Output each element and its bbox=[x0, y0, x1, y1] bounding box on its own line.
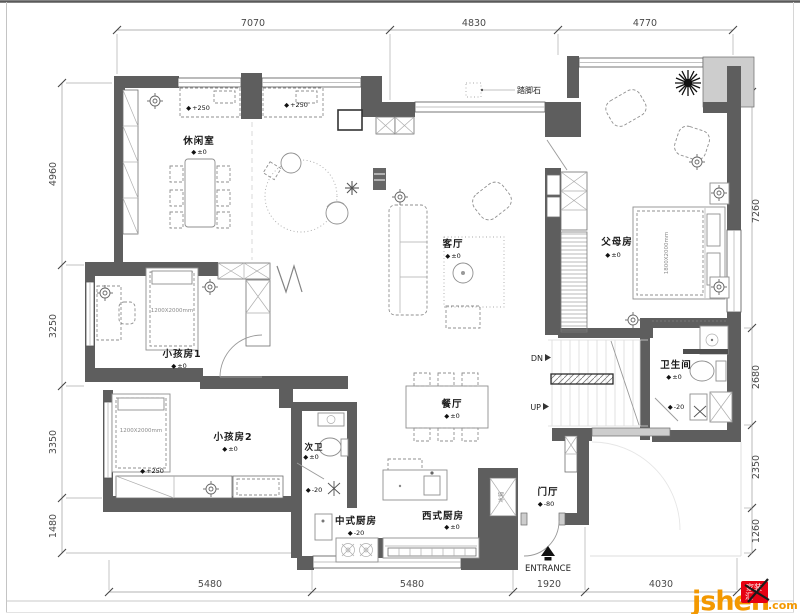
stepping-stone-label: 踏脚石 bbox=[517, 85, 541, 95]
room-label-parents: 父母房 bbox=[600, 236, 633, 248]
svg-text:◆-20: ◆-20 bbox=[348, 529, 365, 537]
bath-toilet bbox=[690, 361, 714, 381]
room-label-dining: 餐厅 bbox=[440, 398, 462, 410]
floor-plan-svg: 7070 4830 4770 4960 3250 3350 1480 7260 … bbox=[0, 0, 800, 614]
room-label-leisure: 休闲室 bbox=[182, 135, 215, 147]
pedestal bbox=[373, 168, 386, 190]
room-label-bath-main: 卫生间 bbox=[660, 359, 692, 371]
island-sink bbox=[424, 476, 440, 495]
shaft-box bbox=[338, 110, 362, 130]
svg-text:◆±0: ◆±0 bbox=[444, 412, 460, 420]
level-plus250-2: ◆+250 bbox=[284, 101, 308, 109]
floor-plan-sheet: 7070 4830 4770 4960 3250 3350 1480 7260 … bbox=[0, 0, 800, 614]
stairs-down-label: DN bbox=[531, 354, 543, 363]
wardrobe-strip bbox=[123, 90, 138, 234]
bath2-basin bbox=[318, 413, 344, 426]
dim-right-2: 2680 bbox=[751, 365, 762, 389]
kid2-bed-size: 1200X2000mm bbox=[120, 428, 162, 434]
svg-text:◆±0: ◆±0 bbox=[171, 362, 187, 370]
parents-closet bbox=[561, 172, 587, 332]
floor-lamp-icon bbox=[345, 181, 359, 195]
stair-handrail bbox=[551, 374, 613, 384]
svg-text:◆±0: ◆±0 bbox=[445, 252, 461, 260]
kitchen-counter bbox=[383, 538, 479, 558]
room-label-foyer: 门厅 bbox=[537, 486, 558, 498]
dim-right-3: 2350 bbox=[751, 455, 762, 479]
dim-top-2: 4830 bbox=[462, 18, 486, 29]
bath-shelf bbox=[683, 349, 728, 354]
stairs-up-label: UP bbox=[530, 403, 541, 412]
svg-text:◆±0: ◆±0 bbox=[222, 445, 238, 453]
room-label-living: 客厅 bbox=[441, 238, 463, 250]
dim-right-4: 1260 bbox=[751, 519, 762, 543]
dim-top-3: 4770 bbox=[633, 18, 657, 29]
svg-text:◆±0: ◆±0 bbox=[191, 148, 207, 156]
dim-left-2: 3250 bbox=[48, 314, 59, 338]
dim-top-1: 7070 bbox=[241, 18, 265, 29]
fridge-label: 冰箱 bbox=[497, 491, 505, 503]
room-label-kid2: 小孩房2 bbox=[212, 431, 252, 443]
parents-bed-size: 1800X2000mm bbox=[664, 232, 670, 274]
dim-left-3: 3350 bbox=[48, 430, 59, 454]
dim-left-4: 1480 bbox=[48, 514, 59, 538]
svg-text:◆±0: ◆±0 bbox=[666, 373, 682, 381]
svg-text:◆±0: ◆±0 bbox=[605, 251, 621, 259]
svg-text:◆-80: ◆-80 bbox=[538, 500, 555, 508]
kid2-closet bbox=[116, 476, 283, 498]
dim-right-1: 7260 bbox=[751, 199, 762, 223]
level-minus20-bath2: ◆-20 bbox=[306, 486, 323, 494]
entrance-label: ENTRANCE bbox=[525, 564, 571, 574]
level-plus250-1: ◆+250 bbox=[186, 104, 210, 112]
room-label-kitchen-cn: 中式厨房 bbox=[335, 515, 377, 527]
dim-left-1: 4960 bbox=[48, 162, 59, 186]
dim-bottom-4: 4030 bbox=[649, 579, 673, 590]
room-label-bath2: 次卫 bbox=[304, 442, 323, 453]
svg-text:◆±0: ◆±0 bbox=[444, 523, 460, 531]
dim-bottom-3: 1920 bbox=[537, 579, 561, 590]
dim-bottom-2: 5480 bbox=[400, 579, 424, 590]
cn-kitchen-cabinet bbox=[315, 514, 332, 540]
level-plus250-3: ◆+250 bbox=[140, 467, 164, 475]
level-minus20-bath: ◆-20 bbox=[668, 403, 685, 411]
gas-stove bbox=[336, 538, 378, 562]
dim-bottom-1: 5480 bbox=[198, 579, 222, 590]
room-label-kid1: 小孩房1 bbox=[161, 348, 201, 360]
kid1-bed-size: 1200X2000mm bbox=[151, 308, 193, 314]
svg-text:◆±0: ◆±0 bbox=[303, 453, 319, 461]
logo-tld: .com bbox=[768, 599, 798, 612]
room-label-kitchen-west: 西式厨房 bbox=[422, 510, 464, 522]
